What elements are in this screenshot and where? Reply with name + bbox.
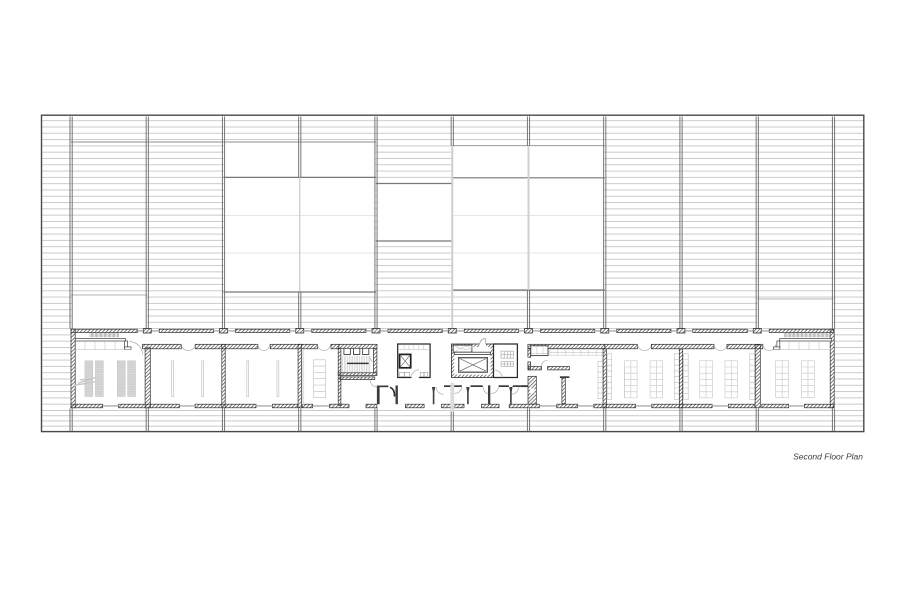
svg-text:Second Floor Plan: Second Floor Plan — [793, 452, 863, 462]
